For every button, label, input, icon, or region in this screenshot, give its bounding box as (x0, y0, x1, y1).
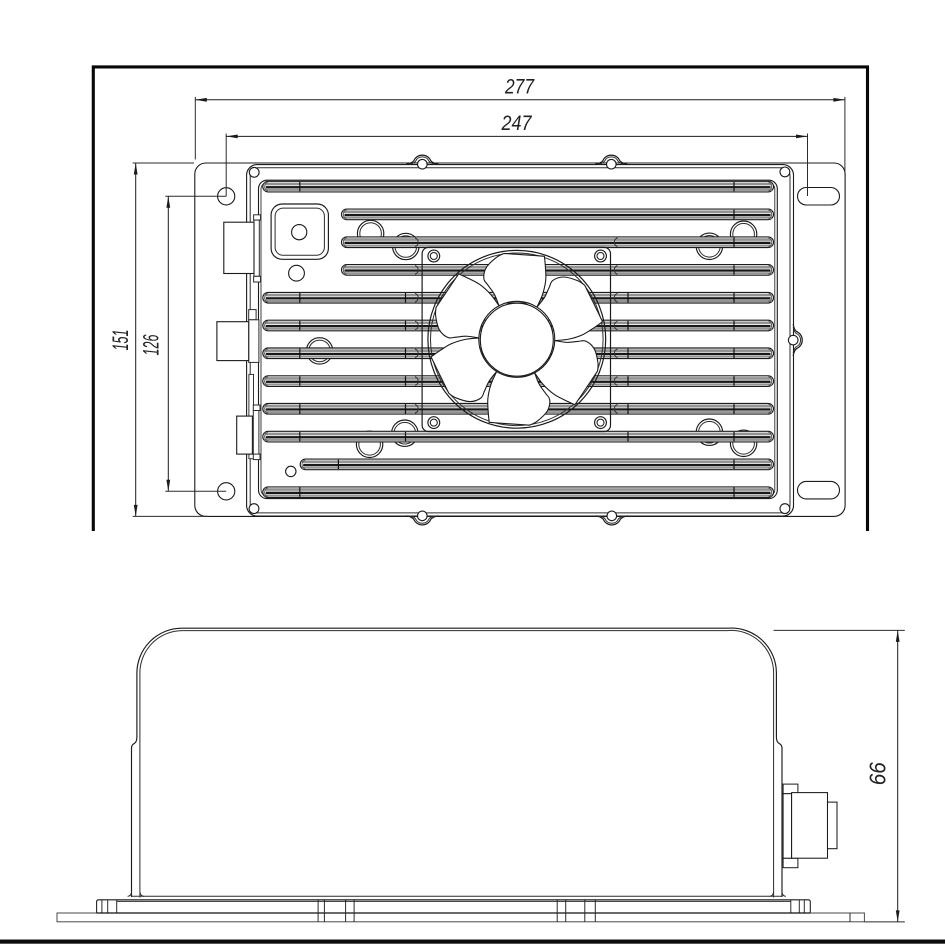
svg-text:66: 66 (865, 762, 891, 785)
svg-text:126: 126 (139, 334, 164, 355)
svg-text:151: 151 (108, 330, 133, 351)
svg-text:247: 247 (501, 112, 533, 135)
svg-text:277: 277 (504, 76, 535, 99)
